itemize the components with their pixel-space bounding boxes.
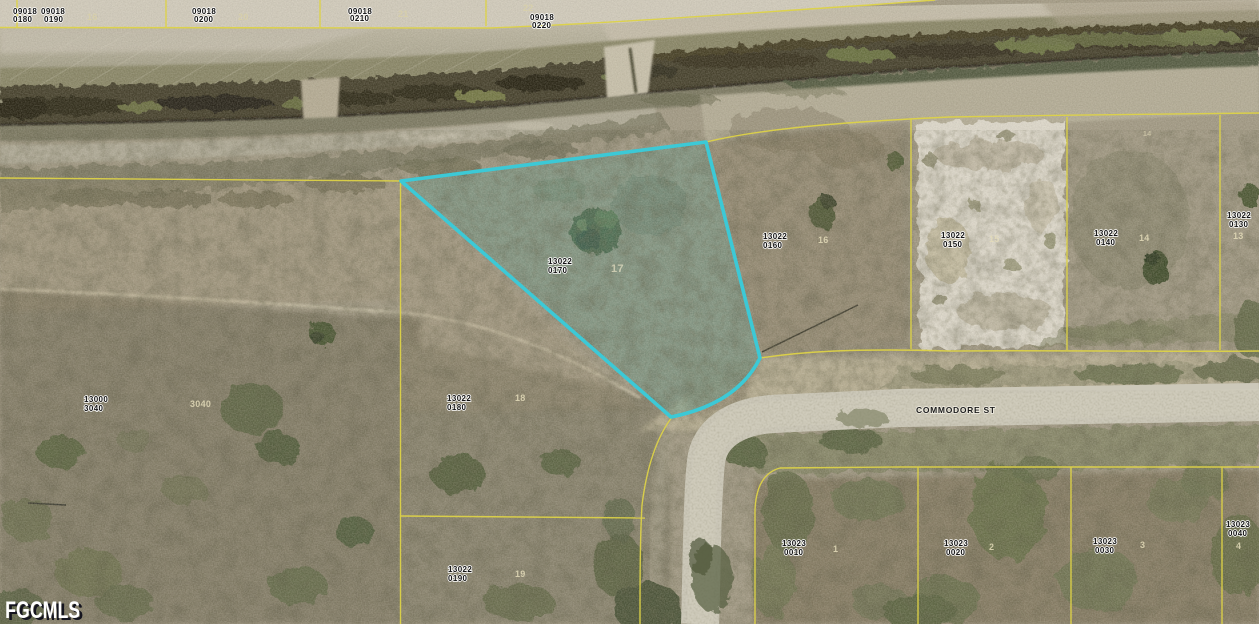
svg-text:0010: 0010	[784, 548, 804, 557]
svg-text:13023: 13023	[1226, 520, 1250, 529]
svg-text:13022: 13022	[1094, 229, 1118, 238]
svg-text:13022: 13022	[1227, 211, 1251, 220]
svg-text:FGCMLS: FGCMLS	[5, 598, 80, 624]
svg-text:0220: 0220	[532, 21, 552, 30]
svg-text:13022: 13022	[941, 231, 965, 240]
svg-text:13022: 13022	[448, 565, 472, 574]
svg-text:0130: 0130	[1229, 220, 1249, 229]
svg-text:0190: 0190	[44, 15, 64, 24]
svg-text:COMMODORE ST: COMMODORE ST	[916, 405, 996, 415]
svg-text:1: 1	[833, 544, 838, 554]
svg-text:14: 14	[1139, 233, 1150, 243]
svg-text:0180: 0180	[13, 15, 33, 24]
svg-text:13: 13	[1233, 231, 1244, 241]
svg-text:3040: 3040	[190, 399, 211, 409]
svg-text:22: 22	[523, 3, 534, 13]
svg-text:0140: 0140	[1096, 238, 1116, 247]
svg-text:13022: 13022	[447, 394, 471, 403]
svg-text:21: 21	[398, 9, 409, 19]
svg-text:0210: 0210	[350, 14, 370, 23]
svg-text:3040: 3040	[84, 404, 104, 413]
svg-text:16: 16	[87, 12, 98, 22]
svg-text:13023: 13023	[1093, 537, 1117, 546]
svg-text:13000: 13000	[84, 395, 108, 404]
svg-text:14: 14	[1143, 131, 1151, 138]
svg-text:0160: 0160	[763, 241, 783, 250]
svg-text:13023: 13023	[944, 539, 968, 548]
svg-text:0040: 0040	[1228, 529, 1248, 538]
svg-text:3: 3	[1140, 540, 1145, 550]
svg-text:17: 17	[611, 263, 624, 275]
svg-text:13023: 13023	[782, 539, 806, 548]
svg-text:18: 18	[515, 393, 526, 403]
svg-text:20: 20	[238, 12, 249, 22]
svg-text:4: 4	[1236, 541, 1241, 551]
svg-text:0030: 0030	[1095, 546, 1115, 555]
svg-text:13022: 13022	[763, 232, 787, 241]
svg-text:0170: 0170	[548, 266, 568, 275]
svg-text:0020: 0020	[946, 548, 966, 557]
svg-text:16: 16	[818, 235, 829, 245]
svg-text:0180: 0180	[447, 403, 467, 412]
svg-text:0190: 0190	[448, 574, 468, 583]
svg-text:2: 2	[989, 542, 994, 552]
svg-text:19: 19	[515, 569, 526, 579]
svg-text:13022: 13022	[548, 257, 572, 266]
svg-text:0200: 0200	[194, 15, 214, 24]
svg-text:15: 15	[989, 234, 1000, 244]
svg-text:0150: 0150	[943, 240, 963, 249]
